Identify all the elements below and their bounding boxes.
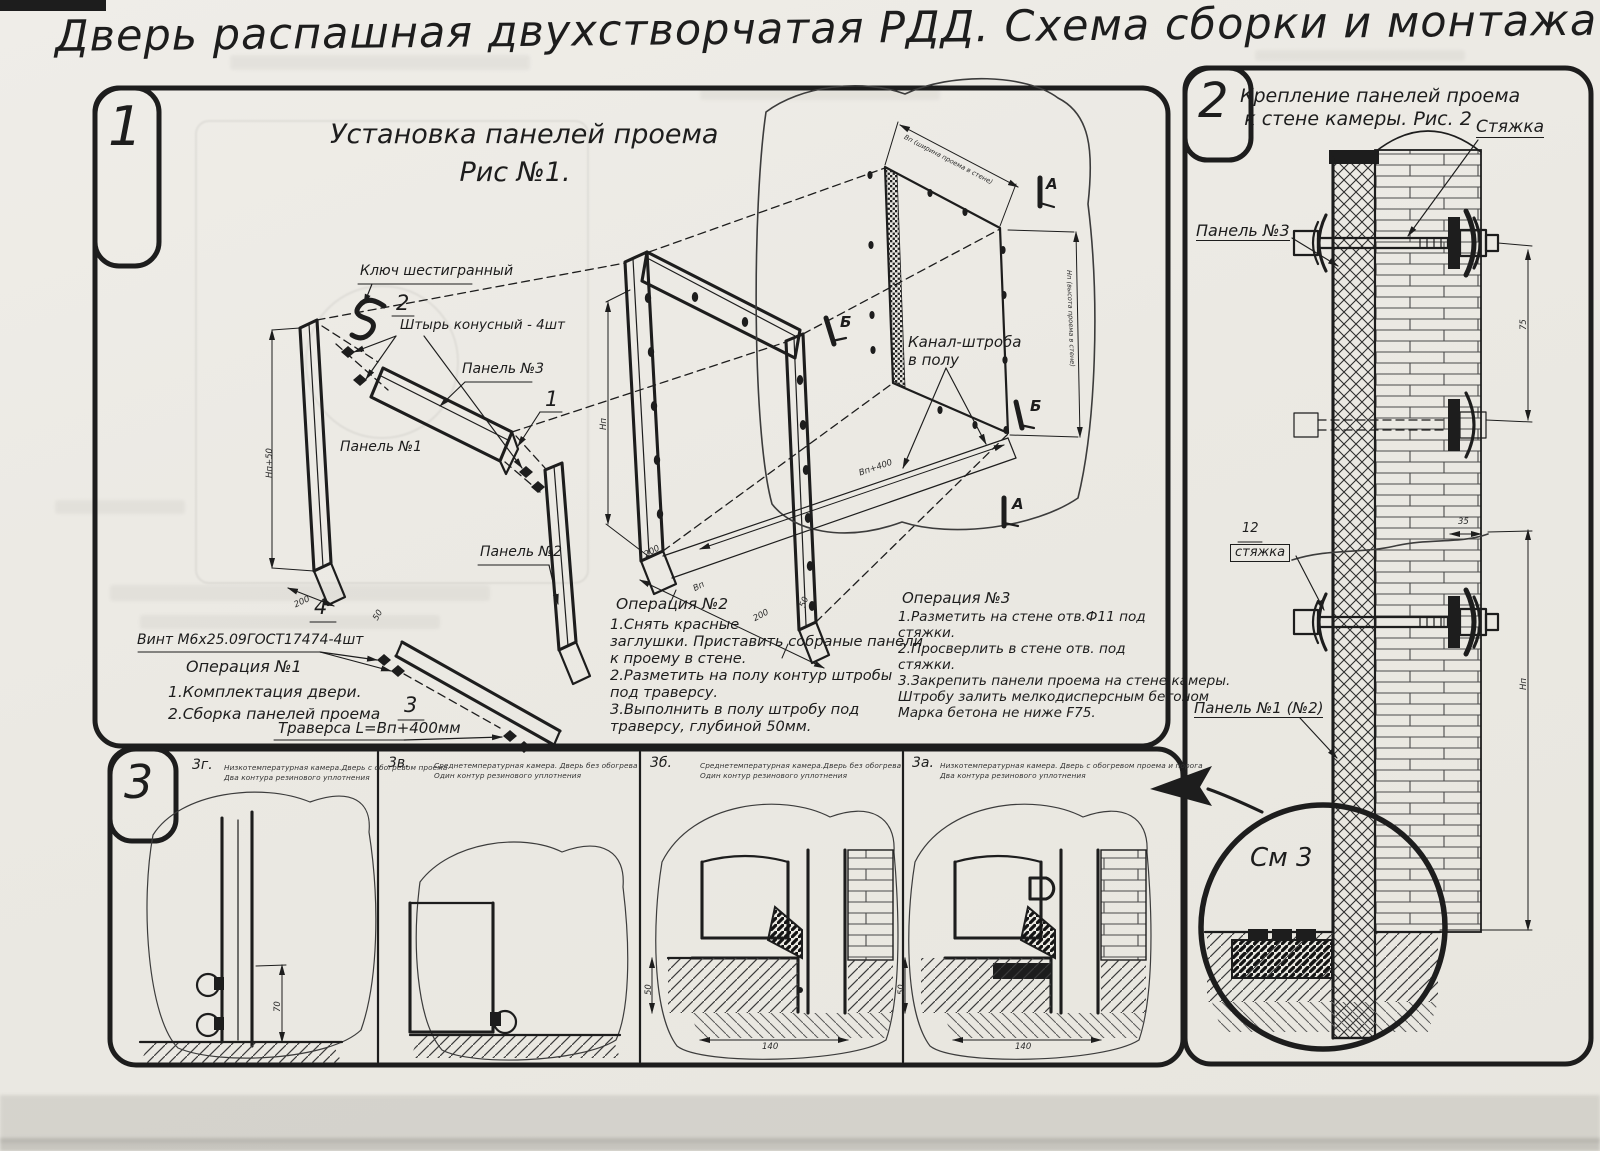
- fig2-subheading: к стене камеры. Рис. 2: [1240, 109, 1476, 130]
- op3-line: 1.Разметить на стене отв.Ф11 под: [898, 610, 1146, 625]
- dim-np-fig2: Нп: [1520, 678, 1529, 690]
- dim-np50: Нп+50: [266, 448, 275, 478]
- detail-3b-dim140: 140: [762, 1043, 778, 1052]
- detail-3a-dim50: 50: [898, 984, 907, 995]
- label-panel3: Панель №3: [462, 362, 544, 377]
- detail-3a: [905, 804, 1151, 1059]
- label-channel-line2: в полу: [908, 352, 959, 368]
- label-pin: Штырь конусный - 4шт: [400, 318, 565, 333]
- op2-line: под траверсу.: [610, 685, 718, 701]
- marker-a-top: А: [1046, 176, 1058, 192]
- detail-3g: [140, 792, 376, 1063]
- op3-line: Штробу залить мелкодисперсным бетоном: [898, 690, 1209, 705]
- dim-np-frame: Нп: [600, 418, 609, 430]
- panel2-shape: [545, 463, 590, 684]
- detail-3a-caption: Два контура резинового уплотнения: [940, 772, 1086, 780]
- balloon-1: 1: [545, 388, 558, 411]
- panel1-shape: [300, 320, 345, 605]
- drawing-sheet: Дверь распашная двухстворчатая РДД. Схем…: [0, 0, 1600, 1151]
- hex-key-icon: [352, 300, 384, 338]
- fig3-tab: 3: [124, 758, 153, 808]
- label-hex-key: Ключ шестигранный: [360, 264, 513, 279]
- floor-detail: [1205, 929, 1440, 1038]
- label-see-detail3: См 3: [1250, 844, 1313, 872]
- op3-line: Марка бетона не ниже F75.: [898, 706, 1096, 721]
- balloon-2: 2: [396, 292, 409, 315]
- wall-opening: [867, 167, 1008, 434]
- balloon-3: 3: [404, 694, 417, 717]
- label-panel2: Панель №2: [480, 545, 562, 560]
- detail-3b-dim50: 50: [645, 984, 654, 995]
- detail-3g-caption: Два контура резинового уплотнения: [224, 774, 370, 782]
- detail-3g-caption: Низкотемпературная камера.Дверь с обогре…: [224, 764, 447, 772]
- fig2-heading: Крепление панелей проема: [1240, 86, 1476, 107]
- line-art: [0, 0, 1600, 1151]
- detail-3v-caption: Среднетемпературная камера. Дверь без об…: [434, 762, 638, 770]
- label-tie: Стяжка: [1476, 118, 1544, 138]
- op3-line: стяжки.: [898, 626, 955, 641]
- detail-3b-id: 3б.: [650, 756, 672, 771]
- dim-35: 35: [1458, 518, 1469, 527]
- op1-line: 2.Сборка панелей проема: [168, 706, 380, 723]
- detail-3g-dim70: 70: [274, 1001, 283, 1012]
- detail-3v-caption: Один контур резинового уплотнения: [434, 772, 581, 780]
- marker-b-bottom: Б: [1030, 398, 1041, 414]
- op2-line: 2.Разметить на полу контур штробы: [610, 668, 892, 684]
- detail-3a-dim140: 140: [1015, 1043, 1031, 1052]
- detail-3a-id: 3а.: [912, 756, 934, 771]
- fig2-drawing: [1150, 131, 1532, 1049]
- floor-channel: [663, 438, 1016, 578]
- fig1-heading: Установка панелей проема: [330, 120, 700, 149]
- tie-box: стяжка: [1230, 544, 1290, 562]
- op2-line: заглушки. Приставить собраные панели: [610, 634, 923, 650]
- detail-3b-caption: Один контур резинового уплотнения: [700, 772, 847, 780]
- balloon-4: 4: [314, 596, 327, 619]
- op3-title: Операция №3: [902, 590, 1010, 606]
- op3-line: 3.Закрепить панели проема на стене камер…: [898, 674, 1230, 689]
- detail-3g-id: 3г.: [192, 758, 213, 773]
- label-panel1: Панель №1: [340, 440, 422, 455]
- panel3-shape: [371, 368, 518, 474]
- dim-75: 75: [1520, 319, 1529, 330]
- label-pos12: 12: [1242, 522, 1259, 536]
- op2-line: к проему в стене.: [610, 651, 746, 667]
- fig1-subheading: Рис №1.: [330, 158, 700, 187]
- label-channel-line1: Канал-штроба: [908, 334, 1021, 350]
- label-panel12: Панель №1 (№2): [1194, 700, 1323, 718]
- op2-title: Операция №2: [616, 596, 728, 613]
- marker-b-frame: Б: [840, 314, 851, 330]
- detail-3b: [652, 804, 898, 1059]
- detail-3v-id: 3в.: [388, 756, 410, 771]
- op1-line: 1.Комплектация двери.: [168, 684, 362, 701]
- detail-3a-caption: Низкотемпературная камера. Дверь с обогр…: [940, 762, 1203, 770]
- op3-line: 2.Просверлить в стене отв. под: [898, 642, 1126, 657]
- label-screw: Винт М6х25.09ГОСТ17474-4шт: [137, 633, 363, 648]
- detail-3b-caption: Среднетемпературная камера.Дверь без обо…: [700, 762, 901, 770]
- op2-line: траверсу, глубиной 50мм.: [610, 719, 811, 735]
- op2-line: 3.Выполнить в полу штробу под: [610, 702, 859, 718]
- fig2-tab: 2: [1198, 76, 1229, 128]
- fig3-drawing: [140, 792, 1151, 1063]
- op1-title: Операция №1: [186, 658, 302, 675]
- callout-arc: [1208, 789, 1262, 812]
- fig1-dimensions: [272, 122, 1080, 668]
- marker-a-bottom: А: [1012, 496, 1024, 512]
- panel-insulation: [1333, 158, 1375, 1038]
- op2-line: 1.Снять красные: [610, 617, 739, 633]
- fig1-tab: 1: [108, 98, 142, 156]
- label-panel3-fig2: Панель №3: [1196, 222, 1290, 241]
- detail-3v: [410, 842, 628, 1060]
- label-tie-boxed: стяжка: [1230, 546, 1290, 560]
- op3-line: стяжки.: [898, 658, 955, 673]
